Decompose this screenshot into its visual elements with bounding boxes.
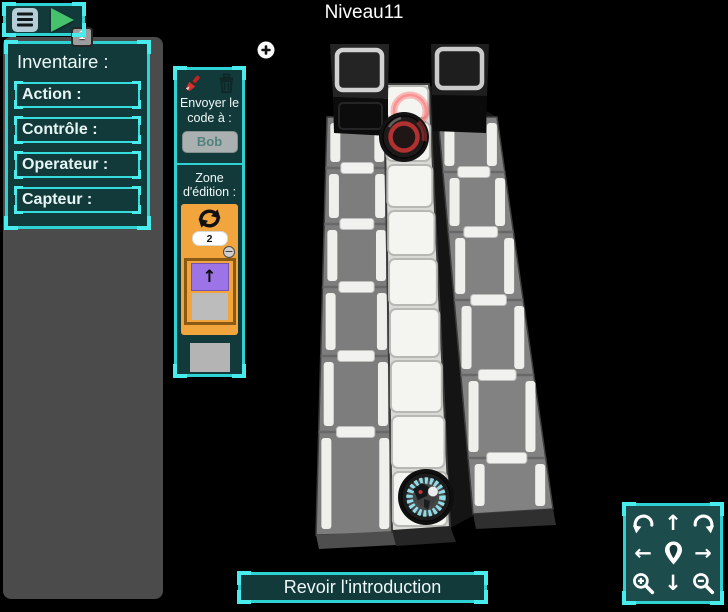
loop-block[interactable]: − ↑ xyxy=(181,204,238,335)
pan-right-button[interactable]: → xyxy=(689,539,718,568)
path-tile xyxy=(391,361,442,412)
loop-slot: ↑ xyxy=(184,258,236,325)
inventory-action-label: Action : xyxy=(22,86,82,103)
inventory-action-button[interactable]: Action : xyxy=(15,82,140,108)
path-tile xyxy=(389,259,437,305)
brush-icon[interactable] xyxy=(182,73,203,94)
zoom-out-button[interactable] xyxy=(689,569,718,598)
arrow-down-icon: ↓ xyxy=(664,573,682,594)
game-window: Niveau11 1 Inventaire : Action : Contrôl… xyxy=(0,0,728,612)
player-robot[interactable] xyxy=(398,469,454,525)
edit-zone-label: Zone d'édition : xyxy=(179,171,241,201)
arrow-up-icon: ↑ xyxy=(664,513,682,534)
loop-count-input[interactable] xyxy=(192,231,228,246)
pan-down-button[interactable]: ↓ xyxy=(659,569,688,598)
left-floor xyxy=(316,117,394,535)
zoom-in-button[interactable] xyxy=(629,569,658,598)
path-tile xyxy=(387,165,432,207)
zoom-in-icon xyxy=(631,571,656,596)
arrow-left-icon: ← xyxy=(634,543,652,564)
camera-nav-panel: ↑ ← → xyxy=(623,503,723,604)
empty-slot[interactable] xyxy=(192,293,228,320)
path-tile xyxy=(392,416,445,468)
dark-cube-right xyxy=(431,44,489,133)
menu-icon xyxy=(17,18,33,21)
loop-icon xyxy=(196,207,223,230)
rotate-ccw-button[interactable] xyxy=(689,509,718,538)
move-forward-block[interactable]: ↑ xyxy=(191,263,229,291)
arrow-right-icon: → xyxy=(694,543,712,564)
level-title: Niveau11 xyxy=(0,2,728,24)
menu-button[interactable] xyxy=(12,8,38,32)
trash-icon[interactable] xyxy=(217,73,236,94)
panel-divider xyxy=(177,163,242,165)
rotate-cw-icon xyxy=(631,511,656,536)
inventory-controle-button[interactable]: Contrôle : xyxy=(15,117,140,143)
zoom-out-icon xyxy=(691,571,716,596)
play-button[interactable] xyxy=(51,8,74,32)
review-intro-label: Revoir l'introduction xyxy=(284,577,442,598)
empty-slot[interactable] xyxy=(190,343,230,372)
send-code-label: Envoyer le code à : xyxy=(179,96,241,126)
inventory-capteur-label: Capteur : xyxy=(22,191,92,208)
top-toolbar: 1 xyxy=(3,3,85,36)
rotate-cw-button[interactable] xyxy=(629,509,658,538)
rotate-ccw-icon xyxy=(691,511,716,536)
plus-icon[interactable] xyxy=(258,42,275,59)
path-tile xyxy=(390,309,439,357)
code-panel: Envoyer le code à : Bob Zone d'édition :… xyxy=(174,67,245,377)
inventory-capteur-button[interactable]: Capteur : xyxy=(15,187,140,213)
inventory-operateur-button[interactable]: Operateur : xyxy=(15,152,140,178)
minus-icon[interactable]: − xyxy=(223,246,235,258)
inventory-title: Inventaire : xyxy=(17,51,147,73)
path-tile xyxy=(388,211,434,255)
location-pin-icon xyxy=(661,540,686,566)
review-intro-button[interactable]: Revoir l'introduction xyxy=(238,572,487,603)
robot-name-button[interactable]: Bob xyxy=(182,131,238,153)
up-arrow-icon: ↑ xyxy=(202,267,216,287)
step-count-badge: 1 xyxy=(71,27,93,47)
recenter-button[interactable] xyxy=(659,539,688,568)
inventory-operateur-label: Operateur : xyxy=(22,156,108,173)
inventory-panel: Inventaire : Action : Contrôle : Operate… xyxy=(5,41,150,229)
dark-cube-left xyxy=(330,44,389,136)
pan-left-button[interactable]: ← xyxy=(629,539,658,568)
inventory-controle-label: Contrôle : xyxy=(22,121,98,138)
pan-up-button[interactable]: ↑ xyxy=(659,509,688,538)
